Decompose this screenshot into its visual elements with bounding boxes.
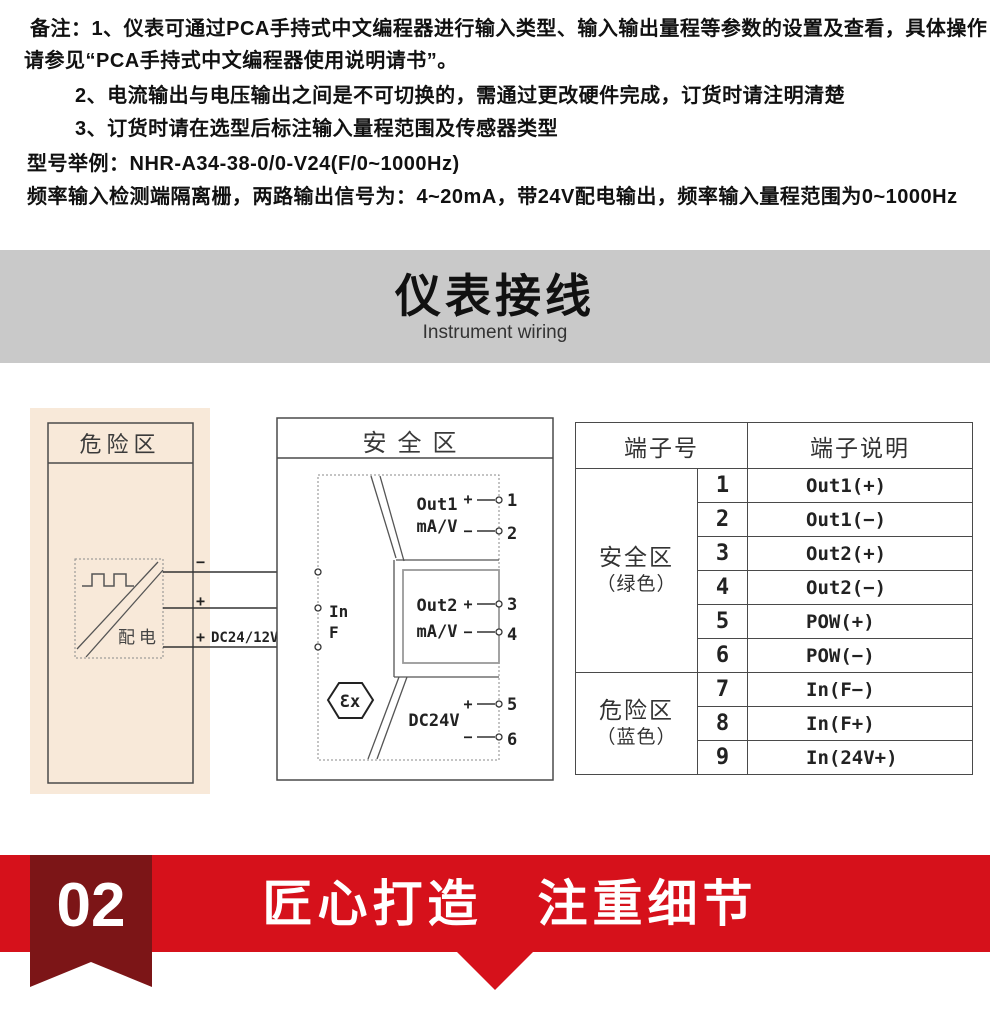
terminal-desc-cell: In(24V+): [748, 741, 973, 775]
note-line-1: 备注：1、仪表可通过PCA手持式中文编程器进行输入类型、输入输出量程等参数的设置…: [30, 16, 987, 42]
terminal-6-sign: −: [463, 728, 472, 746]
terminal-desc-cell: Out2(−): [748, 571, 973, 605]
section-banner: 仪表接线 Instrument wiring: [0, 250, 990, 363]
terminal-3-node: [496, 601, 502, 607]
hazard-zone-panel: [30, 408, 210, 794]
terminal-5-sign: +: [463, 695, 472, 713]
product-detail-page: 备注：1、仪表可通过PCA手持式中文编程器进行输入类型、输入输出量程等参数的设置…: [0, 0, 990, 1017]
note-line-5: 型号举例：NHR-A34-38-0/0-V24(F/0~1000Hz): [27, 151, 460, 177]
hazard-zone-title: 危险区: [79, 433, 160, 458]
safe-zone-title: 安全区: [363, 429, 468, 457]
terminal-4-node: [496, 629, 502, 635]
terminal-desc-cell: POW(−): [748, 639, 973, 673]
wire-7-polarity: −: [196, 553, 205, 571]
dc24v-label: DC24V: [408, 711, 459, 731]
col-header-terminal-desc: 端子说明: [748, 423, 973, 469]
terminal-3-sign: +: [463, 595, 472, 613]
table-header-row: 端子号 端子说明: [576, 423, 973, 469]
wire-9-supply-label: DC24/12V: [211, 630, 279, 646]
terminal-no-cell: 7: [698, 673, 748, 707]
terminal-no-cell: 5: [698, 605, 748, 639]
table-row: 安全区 （绿色） 1 Out1(+): [576, 469, 973, 503]
ex-mark: Ɛx: [340, 692, 360, 712]
terminal-1-number: 1: [507, 491, 517, 511]
terminal-no-cell: 1: [698, 469, 748, 503]
note-line-2: 请参见“PCA手持式中文编程器使用说明请书”。: [24, 48, 458, 74]
table-row: 危险区 （蓝色） 7 In(F−): [576, 673, 973, 707]
input-signal-label: In: [329, 602, 348, 621]
out2-unit-label: mA/V: [417, 622, 458, 642]
terminal-desc-cell: Out2(+): [748, 537, 973, 571]
note-line-6: 频率输入检测端隔离栅，两路输出信号为：4~20mA，带24V配电输出，频率输入量…: [27, 184, 958, 210]
terminal-desc-cell: Out1(+): [748, 469, 973, 503]
zone-group-safe-label: 安全区: [576, 545, 697, 571]
out1-label: Out1: [417, 495, 458, 515]
terminal-no-cell: 3: [698, 537, 748, 571]
section-title: 仪表接线: [0, 272, 990, 320]
out2-label: Out2: [417, 596, 458, 616]
power-dist-label: 配电: [118, 628, 160, 648]
terminal-7-node: [315, 569, 321, 575]
terminal-no-cell: 6: [698, 639, 748, 673]
terminal-8-node: [315, 605, 321, 611]
terminal-5-number: 5: [507, 695, 517, 715]
terminal-table: 端子号 端子说明 安全区 （绿色） 1 Out1(+) 2 Out1(−) 3 …: [575, 422, 973, 775]
footer-pointer-triangle: [457, 952, 533, 990]
terminal-2-node: [496, 528, 502, 534]
out1-unit-label: mA/V: [417, 517, 458, 537]
wiring-diagram: 危险区 配电 − + + DC24/12V 7 8 9 安全区 In F: [0, 395, 560, 815]
terminal-9-node: [315, 644, 321, 650]
col-header-terminal-no: 端子号: [576, 423, 748, 469]
zone-group-hazard-color: （蓝色）: [576, 724, 697, 750]
terminal-desc-cell: In(F−): [748, 673, 973, 707]
terminal-desc-cell: Out1(−): [748, 503, 973, 537]
terminal-4-number: 4: [507, 625, 517, 645]
footer-slogan: 匠心打造 注重细节: [30, 876, 990, 932]
terminal-4-sign: −: [463, 623, 472, 641]
section-subtitle: Instrument wiring: [0, 323, 990, 343]
terminal-desc-cell: POW(+): [748, 605, 973, 639]
terminal-1-sign: +: [463, 490, 472, 508]
note-line-4: 3、订货时请在选型后标注输入量程范围及传感器类型: [75, 116, 558, 142]
note-line-3: 2、电流输出与电压输出之间是不可切换的，需通过更改硬件完成，订货时请注明清楚: [75, 83, 845, 109]
terminal-5-node: [496, 701, 502, 707]
terminal-no-cell: 8: [698, 707, 748, 741]
zone-group-hazard: 危险区 （蓝色）: [576, 673, 698, 775]
terminal-6-number: 6: [507, 730, 517, 750]
terminal-1-node: [496, 497, 502, 503]
input-type-label: F: [329, 623, 339, 642]
zone-group-safe-color: （绿色）: [576, 571, 697, 597]
terminal-no-cell: 2: [698, 503, 748, 537]
terminal-desc-cell: In(F+): [748, 707, 973, 741]
wire-9-polarity: +: [196, 628, 205, 646]
footer-banner: 02 匠心打造 注重细节: [0, 855, 990, 1017]
terminal-6-node: [496, 734, 502, 740]
terminal-3-number: 3: [507, 595, 517, 615]
terminal-2-sign: −: [463, 522, 472, 540]
zone-group-safe: 安全区 （绿色）: [576, 469, 698, 673]
terminal-2-number: 2: [507, 524, 517, 544]
terminal-no-cell: 9: [698, 741, 748, 775]
terminal-no-cell: 4: [698, 571, 748, 605]
wire-8-polarity: +: [196, 592, 205, 610]
zone-group-hazard-label: 危险区: [576, 698, 697, 724]
